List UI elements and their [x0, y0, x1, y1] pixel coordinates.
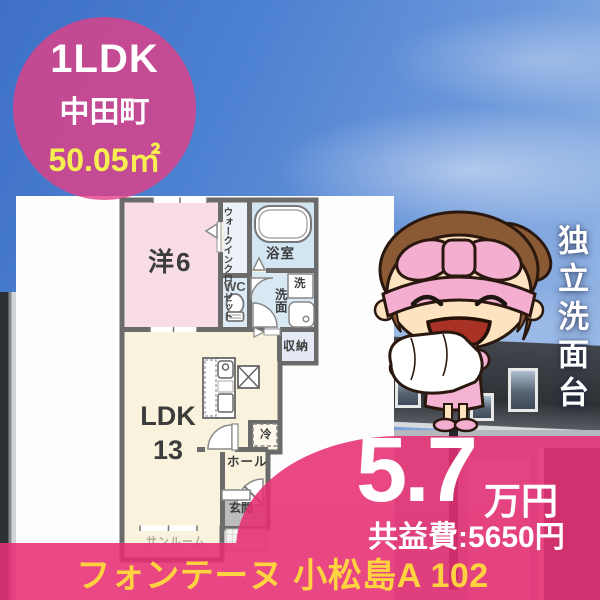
- badge-location: 中田町: [60, 87, 150, 131]
- mascot-character: [325, 192, 545, 442]
- table-icon: [238, 366, 259, 388]
- room-label-entrance: 玄関: [229, 502, 253, 515]
- room-label-hall: ホール: [227, 456, 268, 470]
- feature-vertical-text: 独立洗面台: [548, 224, 593, 414]
- badge-layout: 1LDK: [50, 37, 158, 82]
- rent-amount: 5.7: [356, 424, 475, 516]
- room-label-fridge: 冷: [260, 429, 272, 442]
- bow-knot: [443, 240, 475, 276]
- room-label-wc: WC: [224, 280, 246, 294]
- room-label-ldk: LDK 13: [128, 400, 208, 468]
- room-label-washroom: 洗面: [272, 288, 286, 313]
- shoe-cabinet-icon: [222, 490, 250, 500]
- room-label-washer: 洗: [294, 278, 306, 291]
- listing-flyer: 洋6 ウォークインクローゼット 浴室 WC 洗面 洗 収納 LDK 13 冷 ホ…: [0, 0, 600, 600]
- room-label-sunroom: サンルーム: [146, 536, 206, 548]
- towel: [390, 332, 482, 393]
- ldk-size: 13: [128, 434, 208, 468]
- badge-area: 50.05㎡: [48, 135, 160, 181]
- room-label-walk-in-closet: ウォークインクローゼット: [221, 207, 232, 275]
- room-label-western: 洋6: [148, 248, 192, 277]
- washbasin-icon: [289, 302, 314, 327]
- room-label-storage: 収納: [283, 340, 309, 353]
- room-label-bathroom: 浴室: [266, 247, 295, 262]
- bathtub-icon: [255, 206, 311, 242]
- info-badge: 1LDK 中田町 50.05㎡: [13, 17, 196, 200]
- ldk-name: LDK: [128, 400, 208, 434]
- property-name: フォンテーヌ 小松島A 102: [0, 548, 565, 597]
